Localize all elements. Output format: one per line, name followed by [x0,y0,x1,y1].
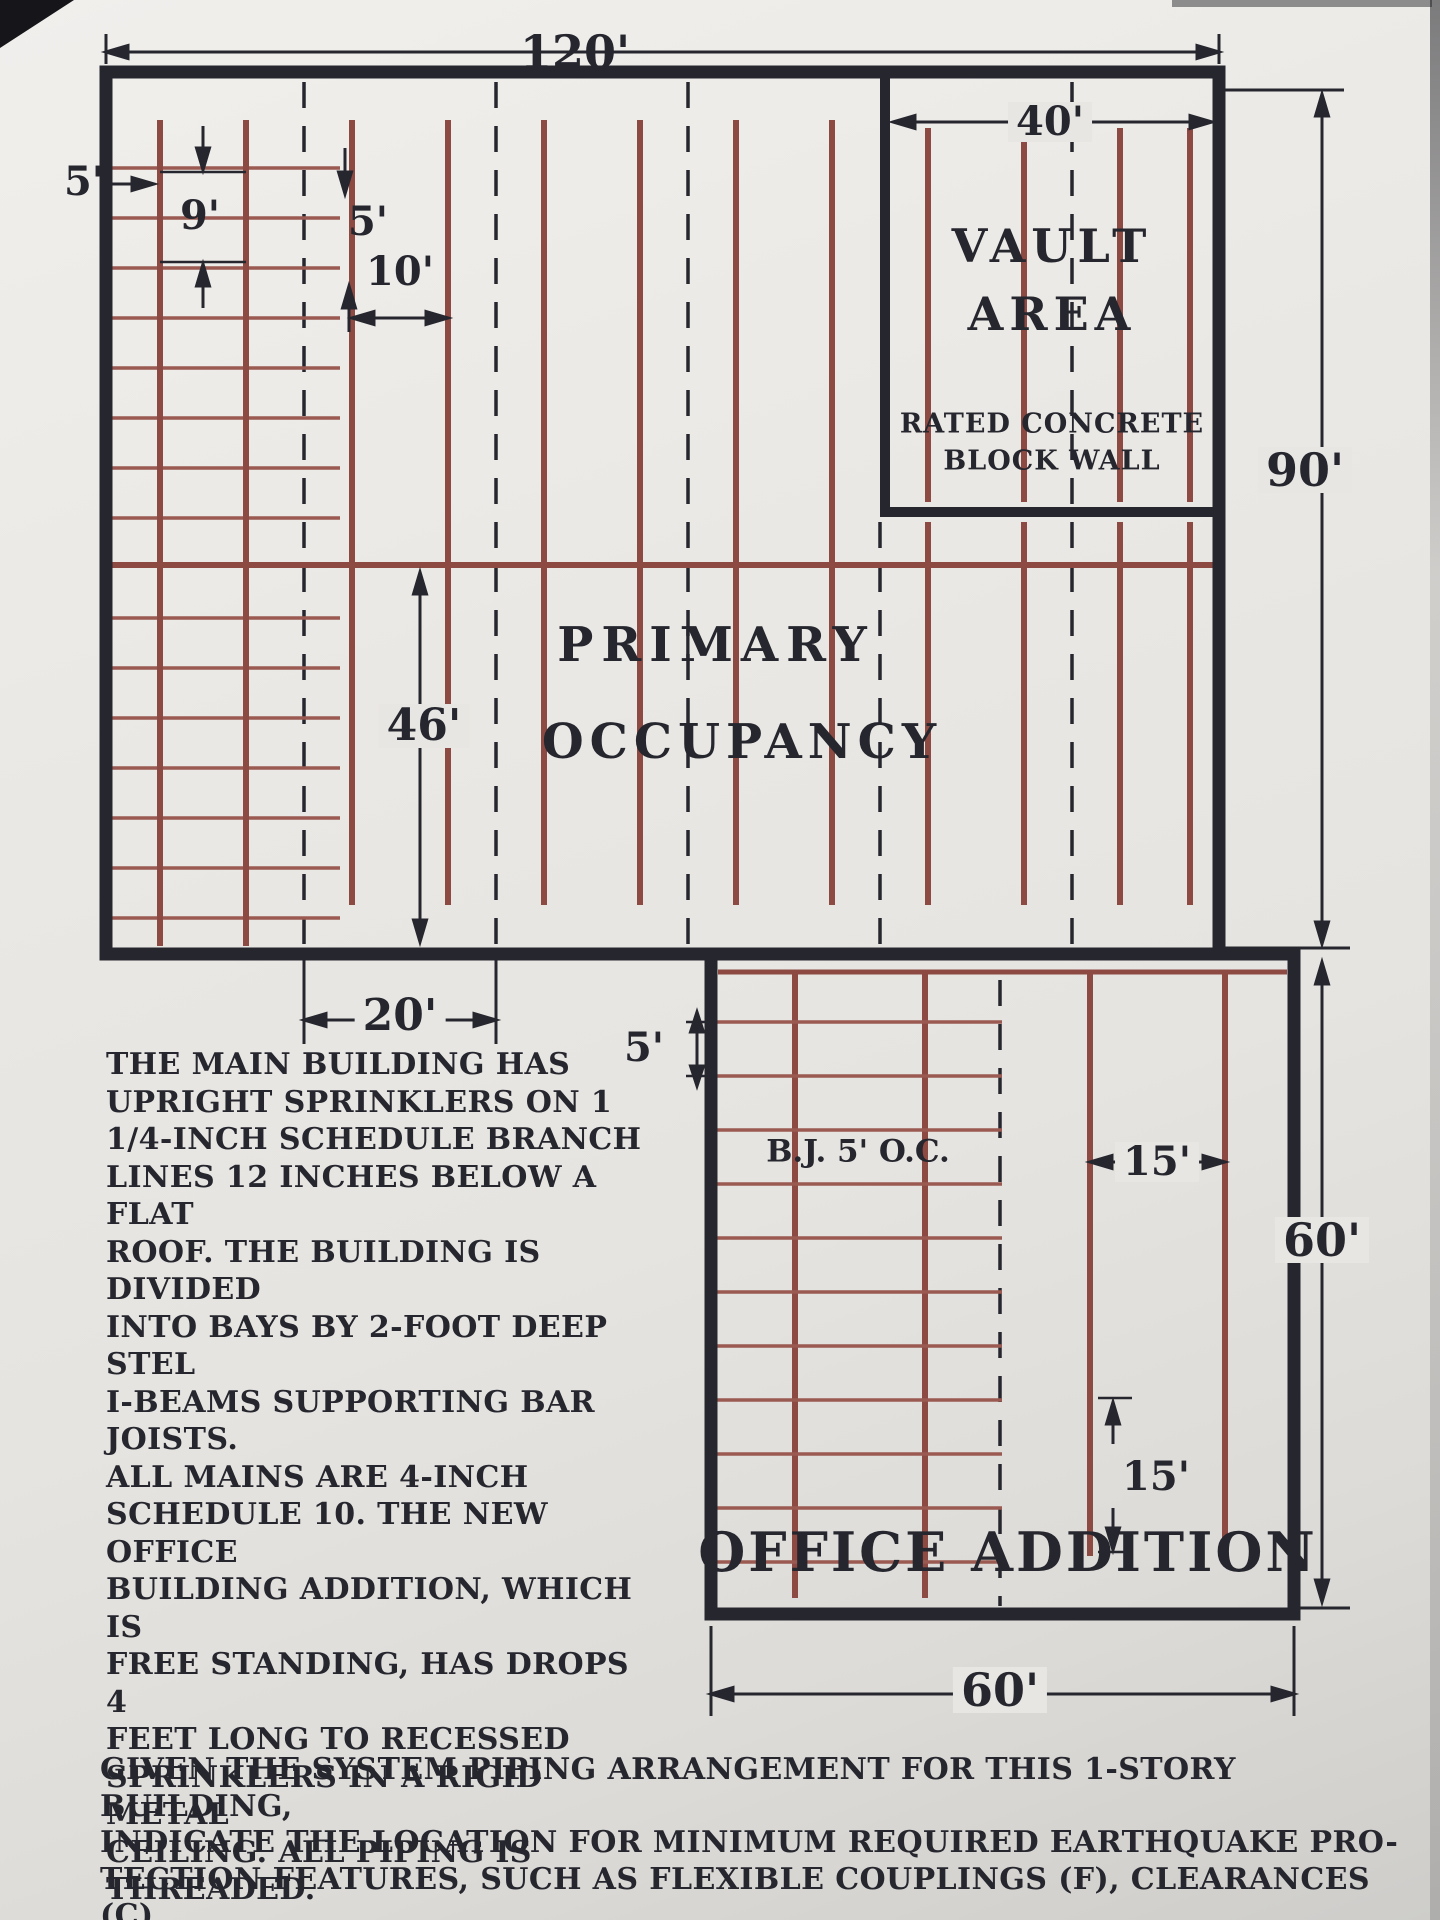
vault-area-title-1: VAULT [952,223,1153,269]
office-addition-title: OFFICE ADDITION [698,1525,1318,1579]
left-mains [160,120,246,946]
dim-building-height: 90' [1258,447,1352,493]
question-text: GIVEN THE SYSTEM PIPING ARRANGEMENT FOR … [100,1752,1430,1920]
photo-edge-shadow [1430,0,1440,1920]
bar-joist-note: B.J. 5' O.C. [766,1137,950,1168]
office-piping [717,972,1287,1598]
left-branch-lines [112,168,340,918]
dim-office-branch-v: 15' [1122,1457,1190,1497]
vault-wall-note-1: RATED CONCRETE [900,411,1204,438]
primary-occupancy-title-2: OCCUPANCY [542,718,942,766]
vault-wall-note-2: BLOCK WALL [943,448,1160,475]
dim-corner-bay: 20' [355,994,446,1038]
dim-main-drop: 46' [379,704,470,748]
dim-building-width: 120' [520,29,630,75]
sprinkler-plan-page: 120' 5' 9' 5' 10' 40' 90' 46' 20' 5' 15'… [0,0,1440,1920]
dim-ladder-gap: 9' [180,196,220,236]
dim-wall-offset: 5' [64,162,104,202]
dim-office-width: 60' [953,1667,1047,1713]
dim-bay-gap: 5' [348,202,388,242]
dim-vault-width: 40' [1008,102,1092,142]
vault-area-title-2: AREA [968,291,1137,337]
dim-office-branch-h: 15' [1115,1142,1199,1182]
dim-office-height: 60' [1275,1217,1369,1263]
primary-occupancy-title-1: PRIMARY [557,621,875,669]
office-addition-wall [711,954,1294,1614]
photo-top-edge-shadow [1172,0,1432,7]
dim-branch-spacing: 10' [366,252,434,292]
